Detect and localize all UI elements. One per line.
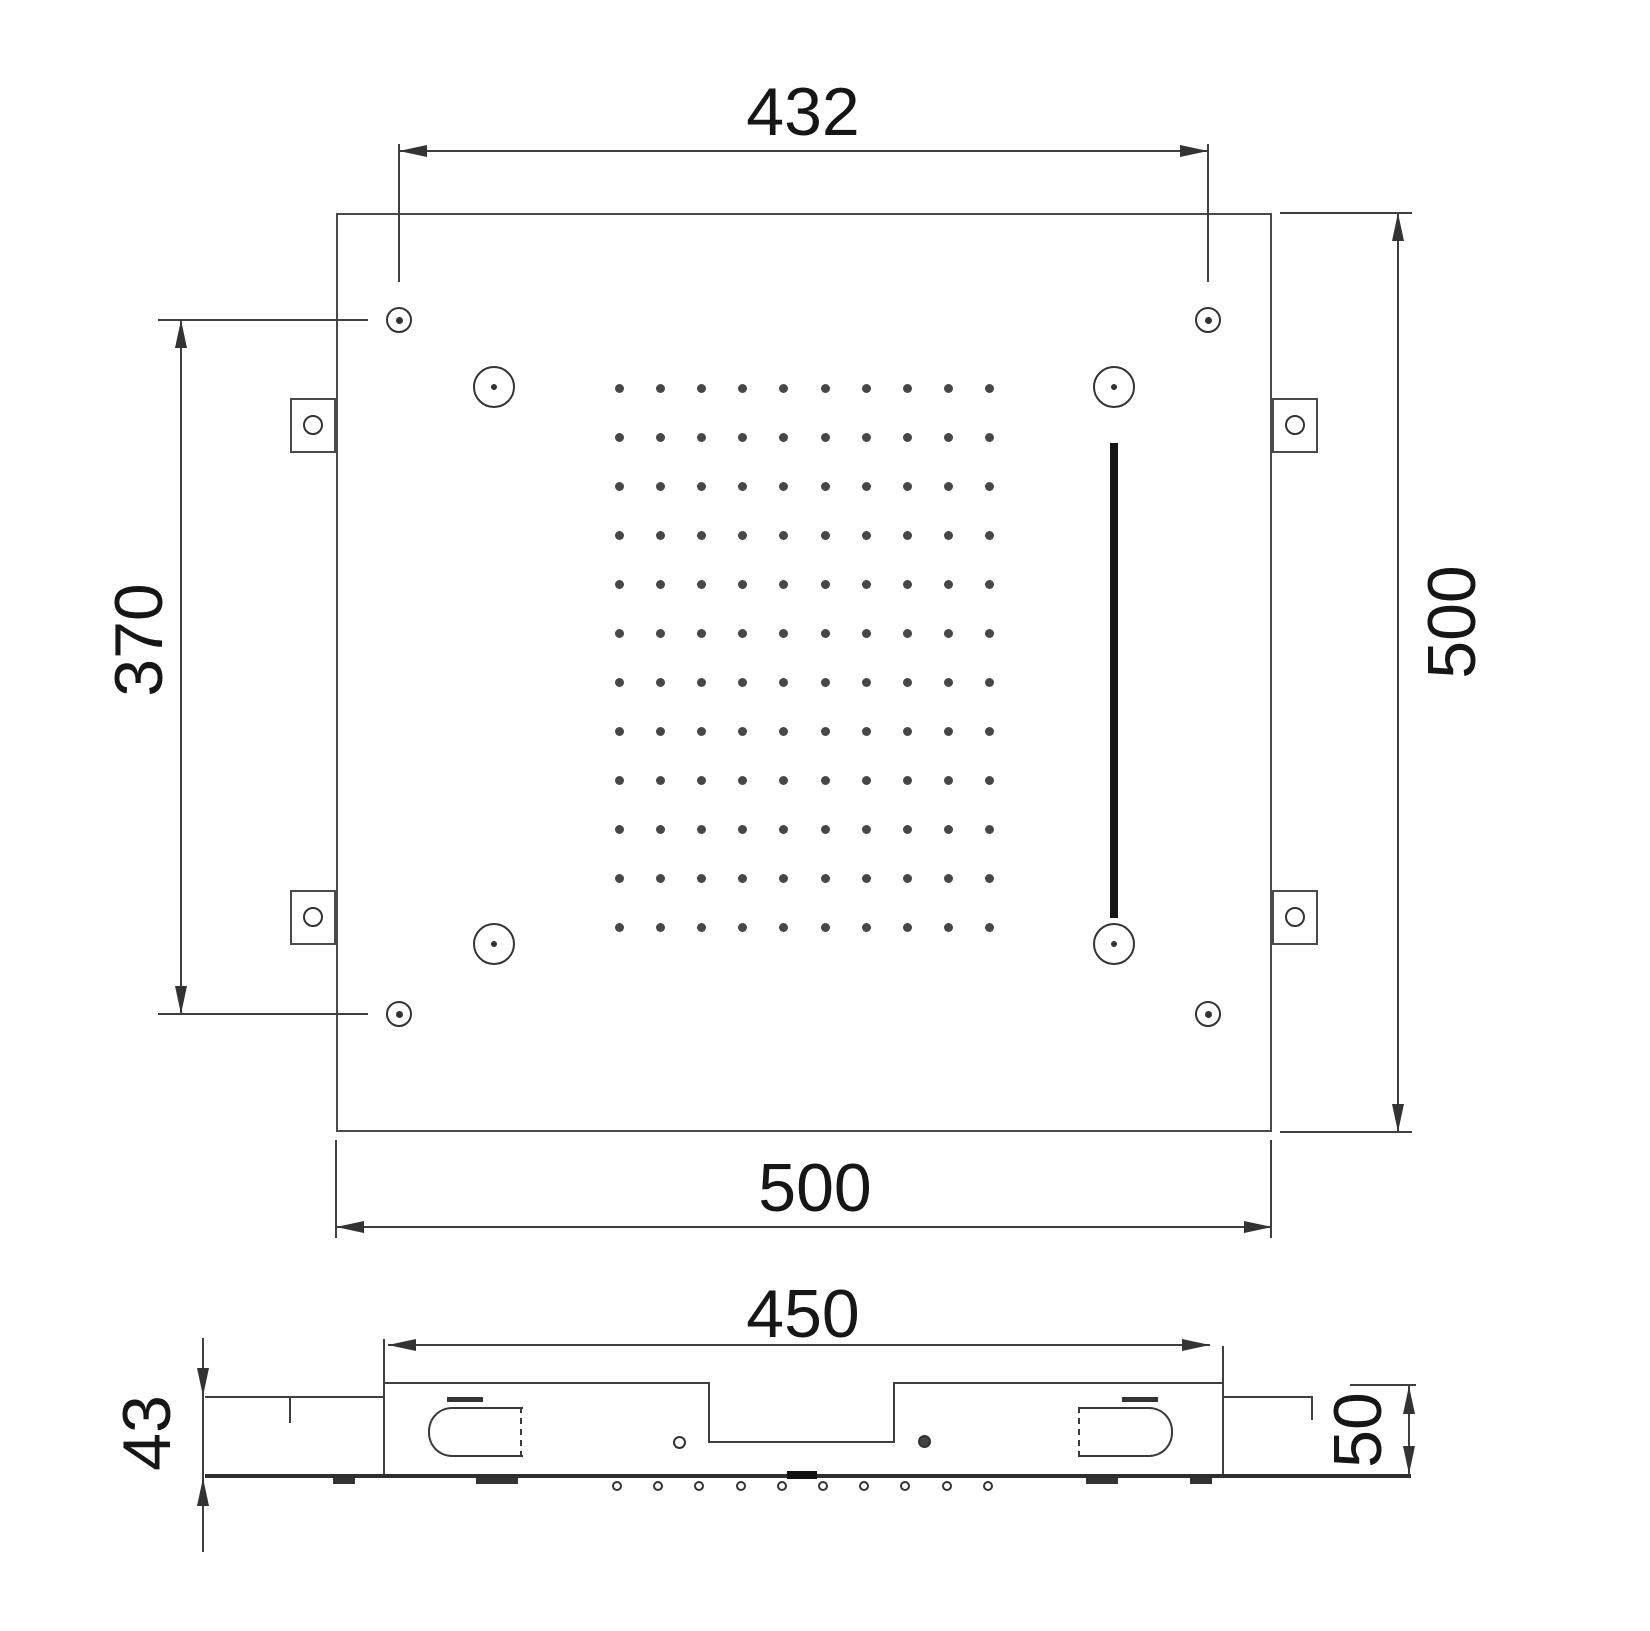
spray-dot: [615, 433, 624, 442]
spray-dot: [697, 531, 706, 540]
nozzle-tip: [736, 1481, 746, 1491]
spray-dot: [779, 580, 788, 589]
spray-dot: [944, 531, 953, 540]
spray-dot: [821, 580, 830, 589]
nozzle-tip: [777, 1481, 787, 1491]
spray-dot: [615, 384, 624, 393]
spray-dot: [615, 678, 624, 687]
spray-dot: [738, 384, 747, 393]
spray-dot: [821, 825, 830, 834]
spray-dot: [985, 482, 994, 491]
screw-hole-bottom-right: [1195, 1001, 1221, 1027]
nozzle-tip: [983, 1481, 993, 1491]
spray-dot: [821, 776, 830, 785]
spray-dot: [697, 923, 706, 932]
spray-dot: [615, 727, 624, 736]
spray-dot: [862, 482, 871, 491]
panel-outline: [336, 213, 1272, 1132]
spray-dot: [903, 678, 912, 687]
spray-dot: [944, 433, 953, 442]
fixing-hole-top-right: [1093, 366, 1135, 408]
screw-hole-top-left: [386, 307, 412, 333]
spray-dot: [615, 776, 624, 785]
screw-hole-top-right: [1195, 307, 1221, 333]
dim-top-label: 432: [746, 78, 859, 146]
spray-dot: [697, 825, 706, 834]
spray-dot: [985, 776, 994, 785]
spray-dot: [985, 629, 994, 638]
fixing-hole-bottom-left: [473, 923, 515, 965]
spray-dot: [903, 825, 912, 834]
spray-dot: [903, 874, 912, 883]
spray-dot: [697, 580, 706, 589]
spray-dot: [656, 629, 665, 638]
fixing-hole-top-left: [473, 366, 515, 408]
spray-dot: [862, 923, 871, 932]
spray-dot: [821, 384, 830, 393]
spray-dot: [738, 482, 747, 491]
bracket-hole-icon: [303, 415, 323, 435]
spray-dot: [738, 874, 747, 883]
spray-dot: [615, 825, 624, 834]
dim-section-left-label: 43: [113, 1395, 181, 1471]
spray-dot: [944, 874, 953, 883]
spray-dot: [738, 531, 747, 540]
spray-dot: [697, 384, 706, 393]
nozzle-tip: [612, 1481, 622, 1491]
spray-dot: [862, 433, 871, 442]
spray-dot: [615, 874, 624, 883]
spray-dot: [944, 580, 953, 589]
spray-dot: [656, 482, 665, 491]
technical-drawing-shower-head: 432 370 500 500: [0, 0, 1650, 1631]
spray-dot: [862, 629, 871, 638]
fitting-cap-right: [1122, 1397, 1158, 1402]
spray-dot: [944, 776, 953, 785]
spray-dot: [821, 629, 830, 638]
spray-dot: [903, 580, 912, 589]
spray-dot: [862, 384, 871, 393]
nozzle-tip: [694, 1481, 704, 1491]
spray-dot: [821, 678, 830, 687]
spray-dot: [944, 629, 953, 638]
spray-dot: [821, 874, 830, 883]
water-fitting-right: [1078, 1407, 1173, 1457]
spray-dot: [738, 580, 747, 589]
spray-dot: [656, 678, 665, 687]
left-lip-hook: [289, 1396, 291, 1423]
spray-dot: [656, 874, 665, 883]
spray-dot: [656, 580, 665, 589]
spray-dot: [944, 923, 953, 932]
spray-dot: [903, 629, 912, 638]
spray-dot: [821, 531, 830, 540]
spray-dot: [615, 531, 624, 540]
spray-dot: [615, 629, 624, 638]
section-body-left-edge: [383, 1382, 385, 1478]
notch-right-step: [893, 1382, 895, 1443]
spray-dot: [903, 482, 912, 491]
spray-dot: [903, 384, 912, 393]
dim-right-label: 500: [1418, 565, 1486, 678]
spray-dot: [779, 629, 788, 638]
spray-dot: [985, 678, 994, 687]
spray-dot: [985, 580, 994, 589]
spray-dot: [656, 825, 665, 834]
nozzle-tip: [900, 1481, 910, 1491]
spray-dot: [985, 923, 994, 932]
nozzle-tip: [653, 1481, 663, 1491]
bracket-hole-icon: [303, 907, 323, 927]
spray-dot: [615, 923, 624, 932]
bracket-hole-icon: [1285, 907, 1305, 927]
spray-dot: [903, 776, 912, 785]
dim-section-width-label: 450: [746, 1280, 859, 1348]
spray-dot: [862, 776, 871, 785]
bracket-hole-icon: [1285, 415, 1305, 435]
spray-dot: [862, 678, 871, 687]
spray-dot: [944, 825, 953, 834]
screw-hole-bottom-left: [386, 1001, 412, 1027]
nozzle-tip: [818, 1481, 828, 1491]
spray-dot: [656, 727, 665, 736]
spray-dot: [697, 678, 706, 687]
spray-dot: [985, 874, 994, 883]
notch-floor: [708, 1441, 895, 1443]
spray-dot: [697, 629, 706, 638]
dim-left-label: 370: [105, 583, 173, 696]
water-fitting-left: [428, 1407, 523, 1457]
spray-dot: [944, 384, 953, 393]
spray-dot: [656, 923, 665, 932]
spray-dot: [779, 531, 788, 540]
spray-dot: [697, 482, 706, 491]
nozzle-tip: [859, 1481, 869, 1491]
nozzle-tip: [942, 1481, 952, 1491]
spray-dot: [821, 433, 830, 442]
spray-dot: [985, 384, 994, 393]
spray-dot: [779, 825, 788, 834]
spray-dot: [821, 923, 830, 932]
body-screw-right: [918, 1435, 931, 1448]
spray-dot: [862, 825, 871, 834]
section-body-right-edge: [1222, 1346, 1224, 1478]
notch-left-step: [708, 1382, 710, 1443]
dim-bottom-label: 500: [758, 1154, 871, 1222]
spray-dot: [738, 825, 747, 834]
spray-dot: [862, 727, 871, 736]
spray-dot: [697, 776, 706, 785]
spray-dot: [738, 923, 747, 932]
spray-dot: [985, 727, 994, 736]
spray-dot: [738, 433, 747, 442]
fixing-hole-bottom-right: [1093, 923, 1135, 965]
spray-dot: [944, 727, 953, 736]
waterfall-slot-bar: [1110, 443, 1118, 918]
spray-dot: [738, 727, 747, 736]
right-lip-hook: [1311, 1396, 1313, 1420]
body-screw-left: [673, 1436, 686, 1449]
spray-dot: [821, 482, 830, 491]
spray-dot: [738, 776, 747, 785]
dim-section-right-label: 50: [1324, 1392, 1392, 1468]
spray-dot: [779, 678, 788, 687]
spray-dot: [779, 727, 788, 736]
spray-dot: [821, 727, 830, 736]
spray-dot: [779, 776, 788, 785]
spray-dot: [779, 433, 788, 442]
spray-dot: [697, 433, 706, 442]
spray-dot: [985, 825, 994, 834]
spray-dot: [944, 482, 953, 491]
spray-dot: [944, 678, 953, 687]
spray-dot: [903, 923, 912, 932]
spray-dot: [779, 874, 788, 883]
spray-dot: [903, 433, 912, 442]
spray-dot: [862, 580, 871, 589]
spray-dot: [656, 776, 665, 785]
right-lip: [1224, 1396, 1313, 1398]
spray-dot: [779, 923, 788, 932]
spray-dot: [779, 384, 788, 393]
spray-dot: [738, 629, 747, 638]
spray-dot: [903, 727, 912, 736]
spray-dot: [615, 580, 624, 589]
spray-dot: [697, 874, 706, 883]
spray-dot: [615, 482, 624, 491]
spray-dot: [985, 531, 994, 540]
spray-dot: [656, 384, 665, 393]
spray-dot: [738, 678, 747, 687]
spray-dot: [862, 531, 871, 540]
left-lip: [205, 1396, 383, 1398]
spray-dot: [656, 433, 665, 442]
spray-dot: [697, 727, 706, 736]
spray-dot: [985, 433, 994, 442]
spray-dot: [656, 531, 665, 540]
spray-dot: [862, 874, 871, 883]
fitting-cap-left: [447, 1397, 483, 1402]
spray-dot: [903, 531, 912, 540]
spray-dot: [779, 482, 788, 491]
waterfall-slot-section: [787, 1471, 817, 1479]
